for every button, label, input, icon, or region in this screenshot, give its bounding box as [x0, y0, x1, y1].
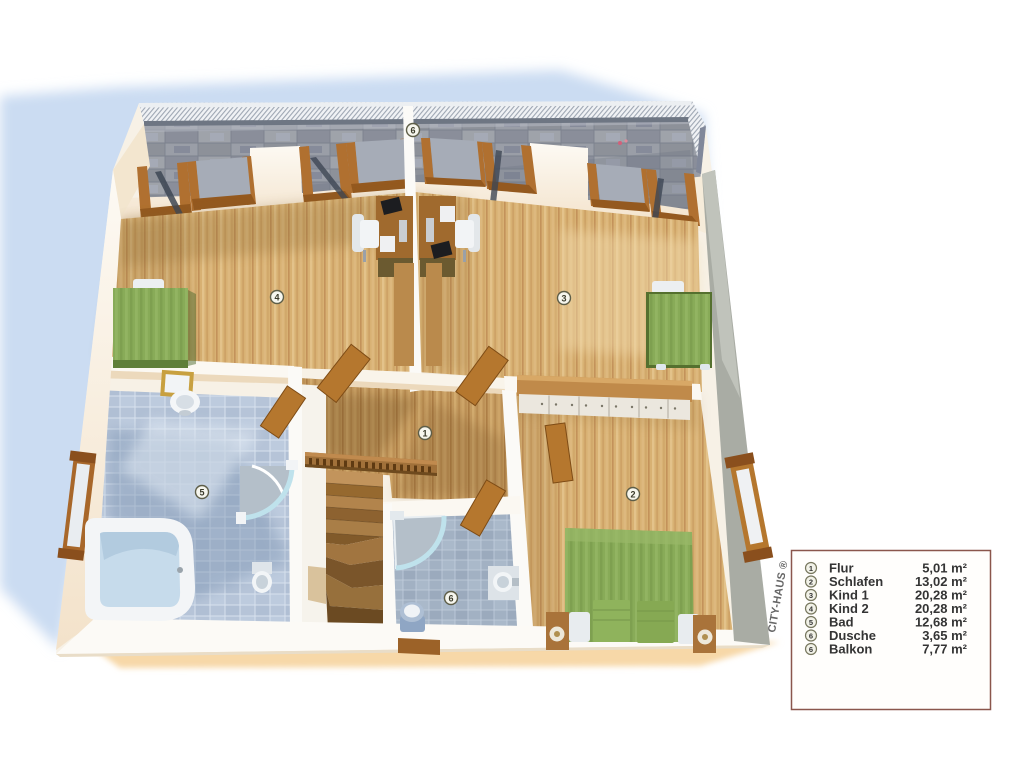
svg-text:6: 6 — [410, 125, 415, 135]
svg-text:1: 1 — [809, 564, 813, 573]
svg-text:3: 3 — [561, 293, 566, 303]
svg-text:Balkon: Balkon — [829, 642, 872, 657]
svg-text:5: 5 — [199, 487, 204, 497]
svg-text:7,77 m²: 7,77 m² — [922, 642, 967, 657]
svg-text:6: 6 — [809, 645, 813, 654]
svg-text:5: 5 — [809, 618, 813, 627]
svg-text:2: 2 — [809, 578, 813, 587]
svg-text:6: 6 — [809, 632, 813, 641]
svg-text:6: 6 — [448, 593, 453, 603]
svg-text:1: 1 — [422, 428, 427, 438]
svg-text:2: 2 — [630, 489, 635, 499]
svg-text:3: 3 — [809, 591, 813, 600]
svg-text:4: 4 — [274, 292, 279, 302]
